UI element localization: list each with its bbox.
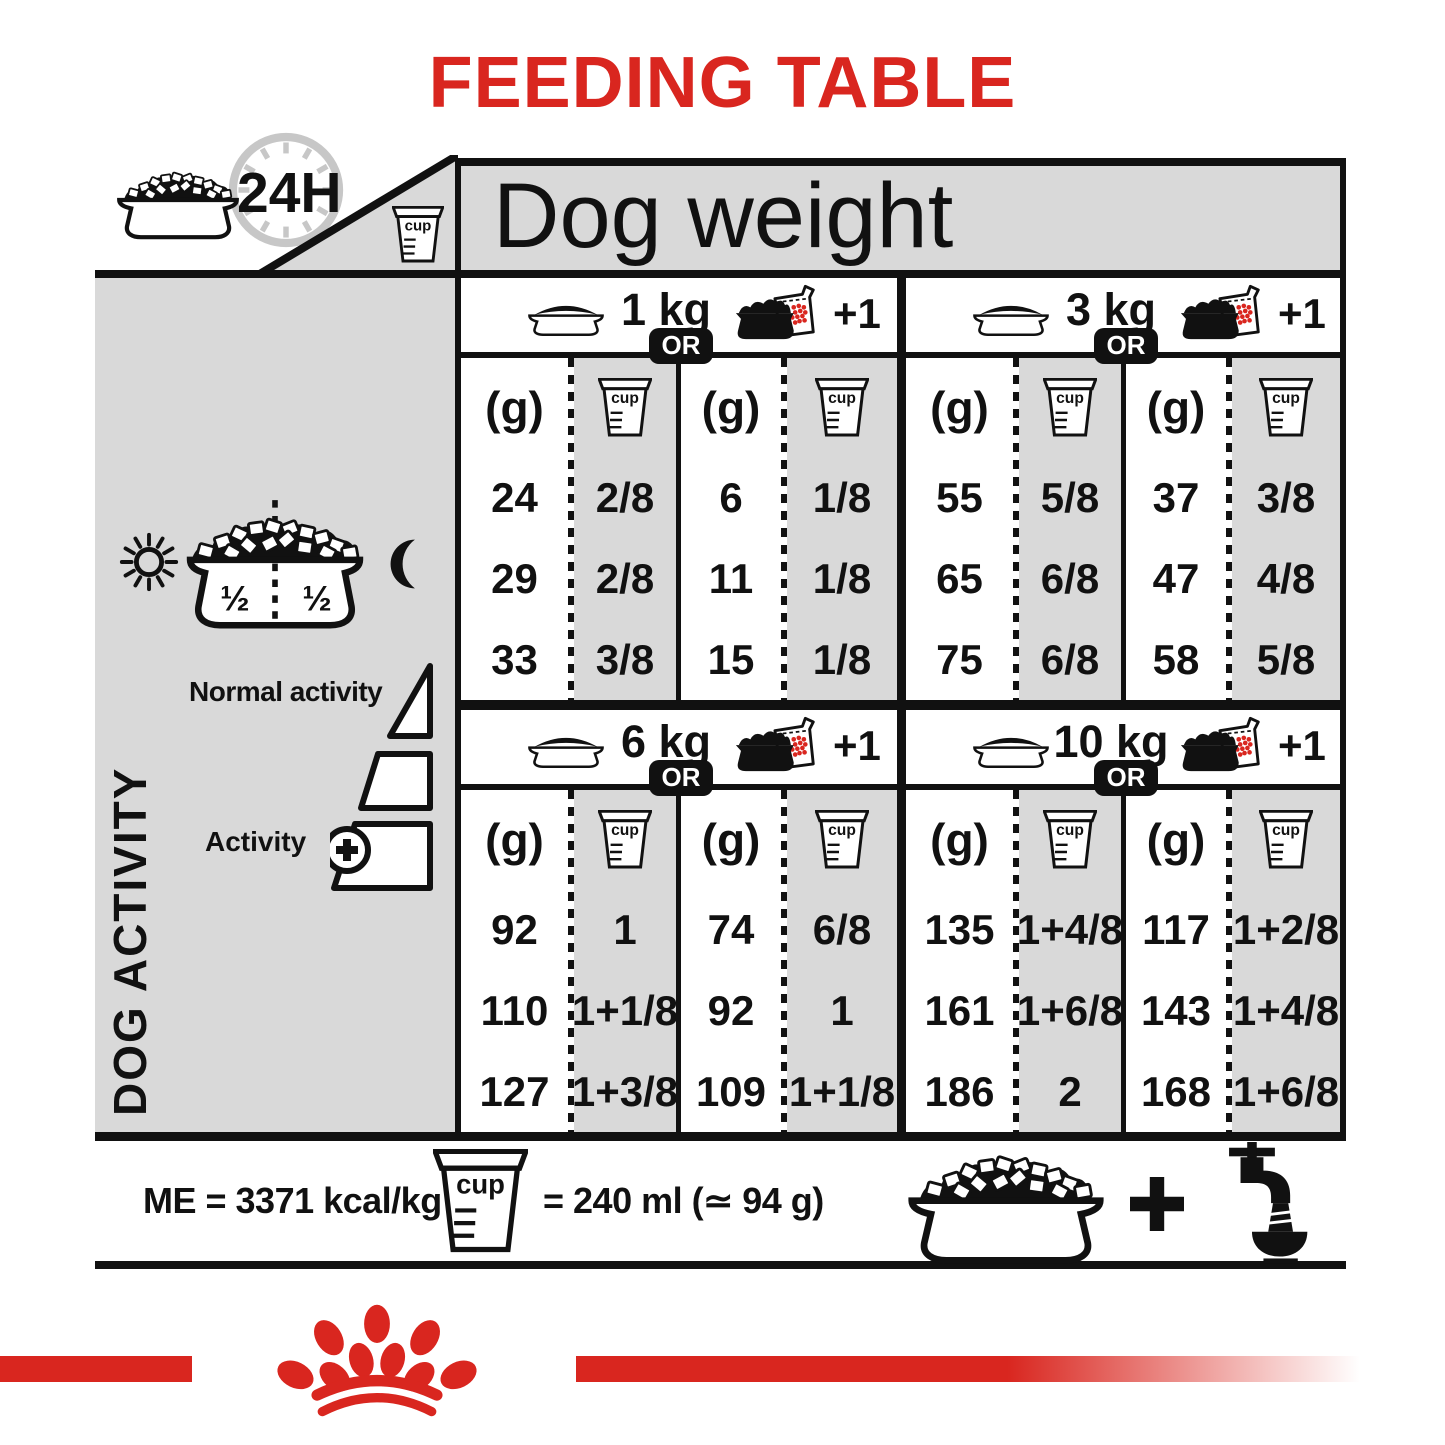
energy-value: ME = 3371 kcal/kg [143,1141,442,1261]
half-portion-bowl-icon [177,500,373,645]
section-divider-vertical [897,278,906,1140]
plus-one-pouch-label: +1 [833,290,881,338]
cup-column: 1 1+1/8 1+3/8 [574,790,676,1132]
cell-value: 6/8 [1019,539,1121,620]
grams-column: (g) 55 65 75 [906,358,1013,700]
cup-icon [598,378,652,438]
cup-icon [1259,378,1313,438]
cell-value: 1+2/8 [1232,890,1340,971]
cell-value: 2/8 [574,458,676,539]
grams-column: (g) 24 29 33 [461,358,568,700]
cup-icon [392,206,444,264]
grams-column-pouch: (g) 117 143 168 [1126,790,1226,1132]
cell-value: 92 [681,971,781,1052]
cell-value: 168 [1126,1051,1226,1132]
bowl-with-pouch-icon [733,716,827,780]
cell-value: 6/8 [787,890,897,971]
brand-stripe-right [576,1356,1360,1382]
sun-icon [117,528,181,596]
cup-icon [815,810,869,870]
cell-value: 4/8 [1232,539,1340,620]
or-badge: OR [1094,328,1158,364]
cup-icon [1043,810,1097,870]
grams-header: (g) [461,790,568,890]
cell-value: 5/8 [1232,619,1340,700]
dry-bowl-icon [523,734,609,768]
bowl-with-pouch-icon [733,284,827,348]
page-title: FEEDING TABLE [0,42,1445,124]
cell-value: 3/8 [1232,458,1340,539]
cell-value: 1/8 [787,619,897,700]
activity-level-wedges-icon [330,662,445,914]
cell-value: 5/8 [1019,458,1121,539]
grams-column: (g) 92 110 127 [461,790,568,1132]
cell-value: 65 [906,539,1013,620]
cell-value: 110 [461,971,568,1052]
plus-one-pouch-label: +1 [1278,722,1326,770]
bowl-with-pouch-icon [1178,716,1272,780]
or-badge: OR [649,328,713,364]
weight-band-1kg-header: 1 kg OR +1 [461,278,897,352]
cell-value: 2 [1019,1051,1121,1132]
plus-icon [1130,1177,1184,1231]
header-divider-line [95,270,1346,278]
cell-value: 1/8 [787,458,897,539]
cell-value: 117 [1126,890,1226,971]
cell-value: 33 [461,619,568,700]
cell-value: 109 [681,1051,781,1132]
grams-header: (g) [906,358,1013,458]
dog-activity-sidebar: DOG ACTIVITY Normal activity Activity [95,278,455,1132]
grams-column: (g) 135 161 186 [906,790,1013,1132]
cell-value: 74 [681,890,781,971]
cup-column: 5/8 6/8 6/8 [1019,358,1121,700]
cup-column: 2/8 2/8 3/8 [574,358,676,700]
cell-value: 47 [1126,539,1226,620]
grams-column-pouch: (g) 37 47 58 [1126,358,1226,700]
cup-icon [815,378,869,438]
cell-value: 127 [461,1051,568,1132]
plus-one-pouch-label: +1 [833,722,881,770]
grams-header: (g) [906,790,1013,890]
grams-header: (g) [681,790,781,890]
plus-one-pouch-label: +1 [1278,290,1326,338]
or-badge: OR [649,760,713,796]
table-border-right [1340,158,1346,1140]
cell-value: 37 [1126,458,1226,539]
cell-value: 135 [906,890,1013,971]
feeding-subtable-6kg: (g) 92 110 127 1 1+1/8 1+3/8 (g) 74 92 1… [461,790,897,1132]
table-border-top [455,158,1346,166]
feeding-subtable-3kg: (g) 55 65 75 5/8 6/8 6/8 (g) 37 47 58 3/… [906,358,1340,700]
cell-value: 6 [681,458,781,539]
grams-header: (g) [1126,790,1226,890]
grams-column-pouch: (g) 6 11 15 [681,358,781,700]
cup-column-pouch: 1+2/8 1+4/8 1+6/8 [1232,790,1340,1132]
cup-column: 1+4/8 1+6/8 2 [1019,790,1121,1132]
cell-value: 143 [1126,971,1226,1052]
cell-value: 1+4/8 [1232,971,1340,1052]
cup-icon [598,810,652,870]
dog-activity-label: DOG ACTIVITY [103,646,157,1116]
or-badge: OR [1094,760,1158,796]
cell-value: 1+6/8 [1232,1051,1340,1132]
cell-value: 11 [681,539,781,620]
cup-column-pouch: 3/8 4/8 5/8 [1232,358,1340,700]
cell-value: 3/8 [574,619,676,700]
cell-value: 6/8 [1019,619,1121,700]
feeding-subtable-10kg: (g) 135 161 186 1+4/8 1+6/8 2 (g) 117 14… [906,790,1340,1132]
cup-column-pouch: 1/8 1/8 1/8 [787,358,897,700]
kibble-bowl-icon [900,1143,1112,1268]
cup-equivalence: = 240 ml (≃ 94 g) [543,1141,824,1261]
cell-value: 58 [1126,619,1226,700]
moon-icon [383,536,425,592]
grams-header: (g) [461,358,568,458]
cell-value: 2/8 [574,539,676,620]
cup-icon [433,1149,528,1255]
weight-band-3kg-header: 3 kg OR +1 [906,278,1340,352]
cup-icon [1259,810,1313,870]
grams-column-pouch: (g) 74 92 109 [681,790,781,1132]
feeding-subtable-1kg: (g) 24 29 33 2/8 2/8 3/8 (g) 6 11 15 1/8… [461,358,897,700]
grams-header: (g) [681,358,781,458]
dry-bowl-icon [968,734,1054,768]
cell-value: 186 [906,1051,1013,1132]
cell-value: 15 [681,619,781,700]
activity-label: Activity [205,826,306,858]
kibble-bowl-icon [112,164,244,242]
royal-canin-paw-logo [222,1296,532,1425]
table-border-left [455,158,461,1140]
cell-value: 55 [906,458,1013,539]
grams-header: (g) [1126,358,1226,458]
cup-icon [1043,378,1097,438]
cell-value: 29 [461,539,568,620]
weight-band-10kg-header: 10 kg OR +1 [906,710,1340,784]
bowl-with-pouch-icon [1178,284,1272,348]
dry-bowl-icon [523,302,609,336]
cell-value: 24 [461,458,568,539]
table-border-bottom [95,1132,1346,1141]
dog-weight-header: Dog weight [455,158,1340,270]
brand-stripe-left [0,1356,192,1382]
cup-column-pouch: 6/8 1 1+1/8 [787,790,897,1132]
cell-value: 161 [906,971,1013,1052]
cell-value: 1 [574,890,676,971]
cell-value: 92 [461,890,568,971]
cell-value: 1+3/8 [574,1051,676,1132]
bottom-info-row: ME = 3371 kcal/kg = 240 ml (≃ 94 g) [95,1141,1346,1261]
cell-value: 1+1/8 [787,1051,897,1132]
water-faucet-icon [1187,1142,1316,1268]
cell-value: 1/8 [787,539,897,620]
cell-value: 1+1/8 [574,971,676,1052]
footer-rule [95,1261,1346,1269]
dry-bowl-icon [968,302,1054,336]
cell-value: 1+4/8 [1019,890,1121,971]
cell-value: 75 [906,619,1013,700]
weight-band-6kg-header: 6 kg OR +1 [461,710,897,784]
cell-value: 1+6/8 [1019,971,1121,1052]
cell-value: 1 [787,971,897,1052]
